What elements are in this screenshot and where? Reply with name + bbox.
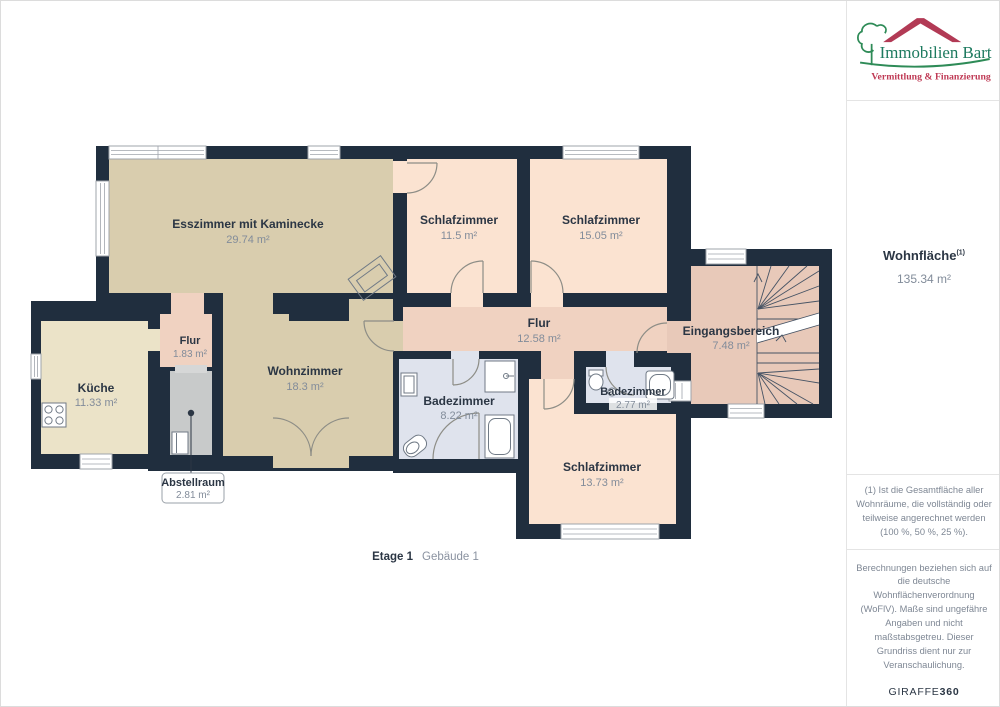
disclaimer-text: Berechnungen beziehen sich auf die deuts… <box>855 562 993 674</box>
floor-label: Etage 1 <box>372 551 414 563</box>
room-area: 7.48 m² <box>712 340 750 352</box>
sidebar: Immobilien Bart Vermittlung & Finanzieru… <box>846 1 1000 707</box>
room-label: Flur <box>528 316 551 330</box>
room-area: 11.33 m² <box>75 397 118 409</box>
window <box>109 146 206 159</box>
footnote-box: (1) Ist die Gesamtfläche aller Wohnräume… <box>847 474 1000 550</box>
floor-caption: Etage 1 Gebäude 1 <box>372 551 479 563</box>
window <box>31 354 41 379</box>
window <box>96 181 109 256</box>
room-area: 2.81 m² <box>176 490 211 501</box>
room-label: Schlafzimmer <box>420 213 498 227</box>
room-area: 11.5 m² <box>441 230 478 242</box>
living-area-summary: Wohnfläche(1) 135.34 m² <box>847 101 1000 474</box>
living-area-label: Wohnfläche(1) <box>883 248 965 263</box>
window <box>563 146 639 159</box>
room-label: Badezimmer <box>423 394 495 408</box>
roof-icon <box>883 18 961 42</box>
footnote-marker: (1) <box>956 250 965 257</box>
disclaimer-box: Berechnungen beziehen sich auf die deuts… <box>847 550 1000 707</box>
floorplan-page: Esszimmer mit Kaminecke 29.74 m² Schlafz… <box>0 0 1000 707</box>
window <box>728 404 764 418</box>
footnote-text: (1) Ist die Gesamtfläche aller Wohnräume… <box>855 484 993 540</box>
building-label: Gebäude 1 <box>422 551 479 563</box>
room-label: Flur <box>180 335 201 347</box>
room-area: 29.74 m² <box>226 234 270 246</box>
room-area: 18.3 m² <box>286 381 324 393</box>
window <box>561 524 659 539</box>
company-name: Immobilien Bart <box>880 43 992 62</box>
room-area: 12.58 m² <box>517 333 561 345</box>
shower-icon <box>485 361 515 392</box>
floor-plan: Esszimmer mit Kaminecke 29.74 m² Schlafz… <box>1 1 846 707</box>
stove-icon <box>42 403 66 427</box>
company-logo-icon: Immobilien Bart Vermittlung & Finanzieru… <box>853 13 995 89</box>
room-area: 15.05 m² <box>579 230 623 242</box>
room-label: Küche <box>78 381 115 395</box>
room-area: 1.83 m² <box>173 349 208 360</box>
room-area: 2.77 m² <box>616 400 651 411</box>
bathtub-icon <box>485 415 514 458</box>
washing-machine-icon <box>172 432 188 454</box>
room-area: 8.22 m² <box>440 410 478 422</box>
window <box>706 249 746 264</box>
room-label: Abstellraum <box>161 477 225 489</box>
window <box>80 454 112 469</box>
living-area-value: 135.34 m² <box>897 272 951 286</box>
room-label: Schlafzimmer <box>562 213 640 227</box>
sink-icon <box>401 373 417 396</box>
room-label: Esszimmer mit Kaminecke <box>172 217 324 231</box>
window <box>308 146 340 159</box>
giraffe360-logo: GIRAFFE360 <box>888 686 959 698</box>
room-label: Badezimmer <box>600 386 666 398</box>
company-tagline: Vermittlung & Finanzierung <box>871 71 990 82</box>
room-area: 13.73 m² <box>580 477 624 489</box>
company-logo: Immobilien Bart Vermittlung & Finanzieru… <box>847 1 1000 101</box>
room-label: Schlafzimmer <box>563 460 641 474</box>
room-label: Wohnzimmer <box>267 364 342 378</box>
room-label: Eingangsbereich <box>683 324 780 338</box>
